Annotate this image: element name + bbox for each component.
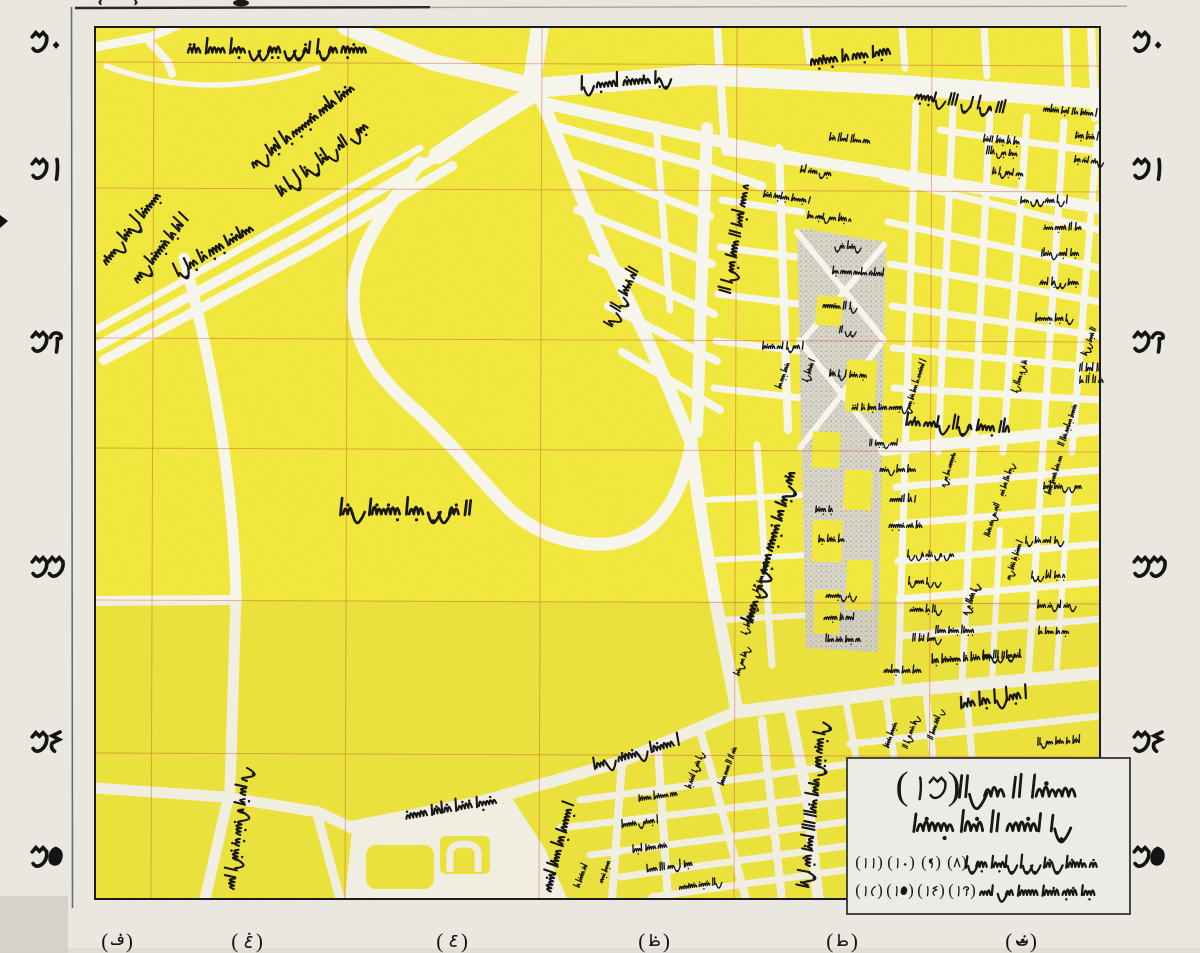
- svg-text:(: (: [638, 929, 645, 953]
- svg-text:): ): [908, 880, 914, 899]
- svg-text:): ): [970, 880, 976, 899]
- svg-text:): ): [935, 852, 941, 871]
- svg-text:(: (: [921, 852, 927, 871]
- svg-text:(: (: [886, 880, 892, 899]
- svg-text:(: (: [855, 880, 861, 899]
- svg-text:): ): [256, 929, 263, 953]
- svg-text:): ): [948, 764, 961, 807]
- svg-text:): ): [461, 929, 468, 953]
- svg-text:): ): [1030, 929, 1037, 953]
- svg-text:(: (: [896, 764, 909, 807]
- svg-text:(: (: [436, 929, 443, 953]
- svg-text:): ): [909, 852, 915, 871]
- svg-text:): ): [961, 852, 967, 871]
- svg-text:): ): [877, 880, 883, 899]
- svg-text:(: (: [1005, 929, 1012, 953]
- svg-text:(: (: [855, 852, 861, 871]
- svg-text:(: (: [101, 929, 108, 953]
- svg-text:(: (: [948, 880, 954, 899]
- svg-text:): ): [939, 880, 945, 899]
- svg-text:(: (: [917, 880, 923, 899]
- svg-text:(: (: [826, 929, 833, 953]
- svg-text:(: (: [887, 852, 893, 871]
- svg-text:(: (: [947, 852, 953, 871]
- svg-text:(: (: [231, 929, 238, 953]
- svg-text:): ): [851, 929, 858, 953]
- svg-text:): ): [126, 929, 133, 953]
- svg-text:): ): [663, 929, 670, 953]
- svg-text:): ): [877, 852, 883, 871]
